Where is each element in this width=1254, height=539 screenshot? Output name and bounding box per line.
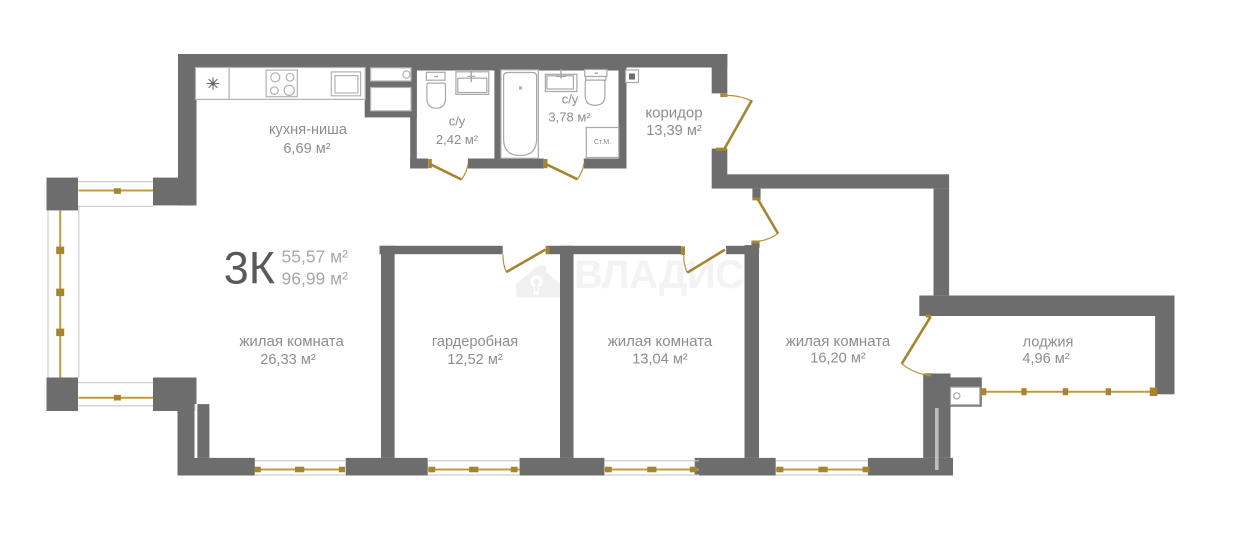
svg-text:12,52 м²: 12,52 м² — [447, 352, 503, 368]
svg-text:кухня-ниша: кухня-ниша — [269, 122, 348, 138]
svg-text:26,33 м²: 26,33 м² — [260, 352, 316, 368]
svg-text:лоджия: лоджия — [1023, 335, 1074, 351]
svg-text:гардеробная: гардеробная — [432, 334, 518, 350]
svg-text:6,69 м²: 6,69 м² — [283, 141, 330, 157]
svg-text:4,96 м²: 4,96 м² — [1022, 351, 1069, 367]
svg-text:16,20 м²: 16,20 м² — [810, 351, 866, 367]
svg-text:жилая комната: жилая комната — [239, 333, 344, 350]
svg-text:3,78 м²: 3,78 м² — [548, 110, 591, 125]
svg-text:Ст.М.: Ст.М. — [594, 139, 611, 146]
svg-text:ВЛАДИС: ВЛАДИС — [574, 253, 743, 297]
svg-text:96,99 м²: 96,99 м² — [282, 269, 349, 289]
svg-text:13,39 м²: 13,39 м² — [646, 123, 702, 139]
svg-text:жилая комната: жилая комната — [786, 333, 891, 350]
svg-text:жилая комната: жилая комната — [608, 333, 713, 350]
svg-text:3К: 3К — [224, 243, 275, 294]
svg-text:55,57 м²: 55,57 м² — [282, 247, 349, 267]
svg-text:13,04 м²: 13,04 м² — [632, 352, 688, 368]
svg-text:с/у: с/у — [562, 91, 579, 106]
svg-text:2,42 м²: 2,42 м² — [436, 132, 479, 147]
svg-text:коридор: коридор — [645, 105, 702, 122]
svg-text:с/у: с/у — [449, 113, 466, 128]
